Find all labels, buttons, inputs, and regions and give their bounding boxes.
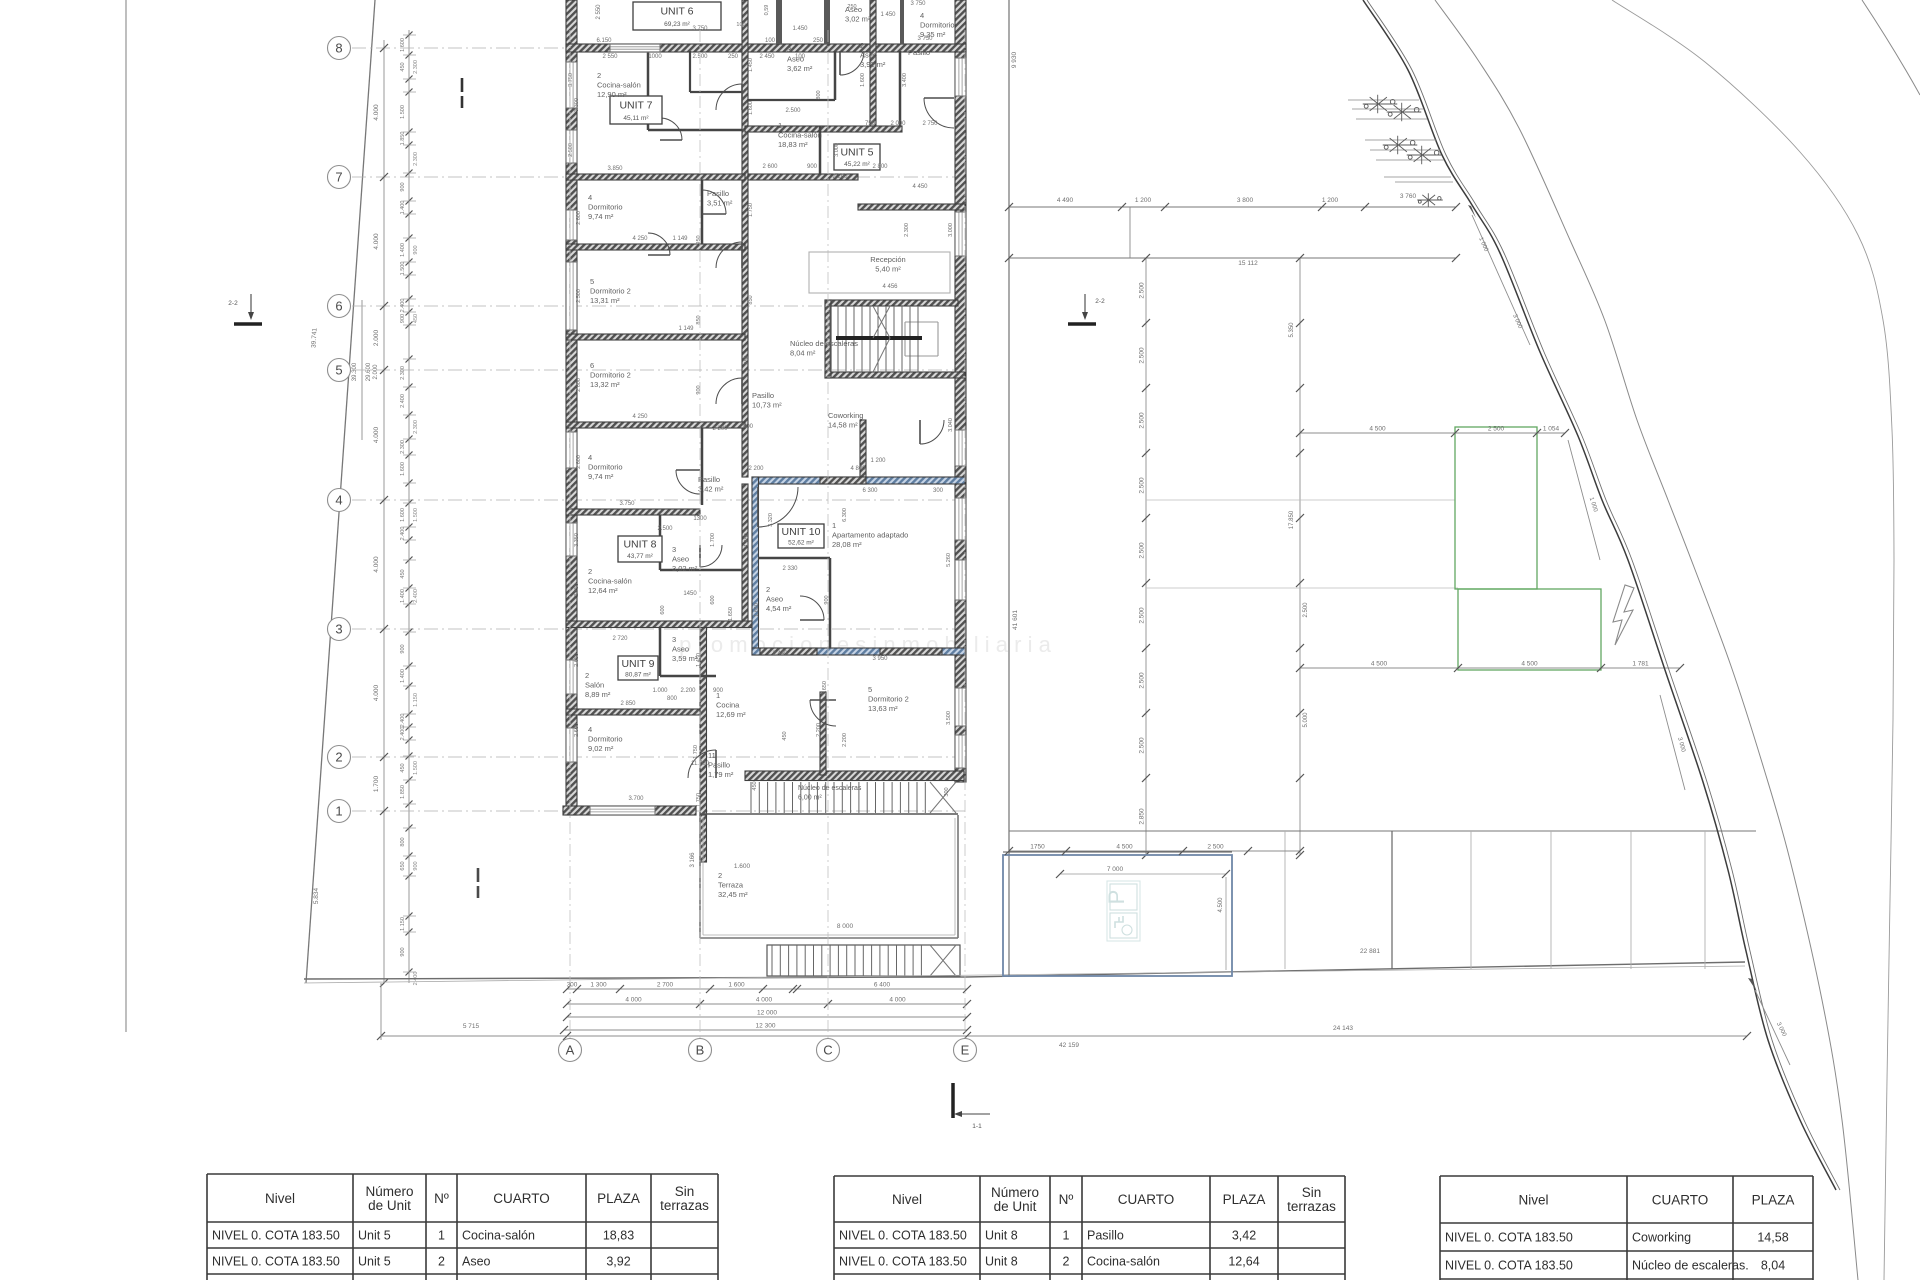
svg-text:600: 600	[660, 605, 666, 614]
svg-text:450: 450	[400, 763, 406, 772]
svg-text:39.741: 39.741	[310, 327, 318, 348]
svg-text:3 950: 3 950	[872, 656, 888, 662]
svg-text:2 720: 2 720	[612, 636, 628, 642]
svg-text:13,31 m²: 13,31 m²	[590, 296, 620, 305]
svg-text:7: 7	[335, 170, 342, 185]
svg-text:2-2: 2-2	[228, 300, 238, 307]
svg-text:45,22 m²: 45,22 m²	[844, 161, 870, 168]
svg-text:Aseo: Aseo	[860, 51, 877, 60]
svg-text:2.400: 2.400	[400, 299, 406, 313]
svg-text:2.500: 2.500	[1139, 607, 1146, 624]
svg-text:4 000: 4 000	[889, 997, 906, 1004]
svg-text:3,92 m²: 3,92 m²	[860, 60, 886, 69]
svg-text:800: 800	[667, 696, 678, 702]
svg-text:8,04: 8,04	[1761, 1259, 1785, 1273]
svg-text:2 440: 2 440	[772, 651, 788, 657]
svg-text:UNIT 10: UNIT 10	[782, 526, 821, 538]
svg-text:9,02 m²: 9,02 m²	[588, 744, 614, 753]
svg-text:UNIT 9: UNIT 9	[621, 658, 654, 670]
svg-text:4 800: 4 800	[850, 466, 866, 472]
svg-text:2.200: 2.200	[816, 723, 822, 737]
svg-text:2: 2	[585, 671, 589, 680]
svg-text:2.400: 2.400	[400, 714, 406, 728]
svg-text:39.300: 39.300	[352, 362, 358, 381]
svg-text:13,32 m²: 13,32 m²	[590, 380, 620, 389]
svg-text:1.750: 1.750	[748, 203, 754, 217]
svg-text:NIVEL 0. COTA 183.50: NIVEL 0. COTA 183.50	[212, 1255, 340, 1269]
svg-text:6: 6	[335, 299, 342, 314]
svg-text:1: 1	[778, 121, 782, 130]
svg-text:Aseo: Aseo	[672, 645, 689, 654]
svg-text:1.000: 1.000	[652, 688, 668, 694]
svg-text:45,11 m²: 45,11 m²	[623, 115, 649, 122]
svg-text:42 159: 42 159	[1059, 1042, 1079, 1049]
svg-text:1 781: 1 781	[1632, 661, 1649, 668]
svg-text:Dormitorio 2: Dormitorio 2	[590, 371, 631, 380]
svg-text:2.600: 2.600	[576, 211, 582, 225]
svg-text:1-1: 1-1	[972, 1123, 982, 1130]
svg-text:2.600: 2.600	[576, 455, 582, 469]
svg-text:900: 900	[413, 245, 419, 254]
svg-text:24 143: 24 143	[1333, 1025, 1353, 1032]
svg-text:2: 2	[1063, 1255, 1070, 1269]
svg-text:32,45 m²: 32,45 m²	[718, 890, 748, 899]
svg-text:2.850: 2.850	[1139, 808, 1146, 825]
svg-text:2.600: 2.600	[574, 723, 580, 737]
svg-text:2 850: 2 850	[620, 701, 636, 707]
svg-text:4 250: 4 250	[632, 414, 648, 420]
svg-text:100: 100	[795, 54, 806, 60]
svg-text:2 600: 2 600	[762, 164, 778, 170]
svg-text:Nivel: Nivel	[265, 1191, 295, 1206]
svg-text:NIVEL 0. COTA 183.50: NIVEL 0. COTA 183.50	[839, 1229, 967, 1243]
svg-text:3,42: 3,42	[1232, 1229, 1256, 1243]
svg-text:PLAZA: PLAZA	[597, 1191, 640, 1206]
svg-text:3: 3	[672, 545, 676, 554]
svg-text:Cocina-salón: Cocina-salón	[588, 577, 632, 586]
svg-text:100: 100	[765, 38, 776, 44]
svg-text:2.500: 2.500	[1139, 672, 1146, 689]
svg-text:14,58 m²: 14,58 m²	[828, 421, 858, 430]
svg-text:900: 900	[400, 182, 406, 191]
svg-text:4.000: 4.000	[373, 426, 380, 443]
svg-text:Pasillo: Pasillo	[908, 48, 930, 57]
svg-text:14,58: 14,58	[1757, 1231, 1788, 1245]
svg-text:1.600: 1.600	[860, 73, 866, 87]
svg-text:600: 600	[710, 595, 716, 604]
svg-text:2.200: 2.200	[680, 688, 696, 694]
svg-text:1.600: 1.600	[734, 863, 751, 870]
svg-text:650: 650	[400, 861, 406, 870]
svg-text:12,64 m²: 12,64 m²	[588, 586, 618, 595]
svg-text:2 200: 2 200	[712, 426, 728, 432]
svg-text:5: 5	[868, 685, 872, 694]
svg-text:12,90 m²: 12,90 m²	[597, 90, 627, 99]
svg-text:3: 3	[787, 45, 791, 54]
svg-text:1.500: 1.500	[400, 262, 406, 276]
svg-text:2 200: 2 200	[748, 466, 764, 472]
svg-text:4 000: 4 000	[756, 997, 773, 1004]
svg-text:3.750: 3.750	[568, 73, 574, 87]
svg-text:4 250: 4 250	[632, 236, 648, 242]
svg-text:4 450: 4 450	[912, 184, 928, 190]
svg-text:5,40 m²: 5,40 m²	[875, 265, 901, 274]
svg-text:Cocina-salón: Cocina-salón	[778, 131, 822, 140]
svg-text:1.700: 1.700	[373, 775, 380, 792]
svg-text:Nº: Nº	[1059, 1192, 1074, 1207]
svg-text:1.500: 1.500	[413, 761, 419, 775]
svg-text:PLAZA: PLAZA	[1223, 1192, 1266, 1207]
svg-text:52,62 m²: 52,62 m²	[788, 539, 814, 546]
svg-text:1000: 1000	[648, 54, 662, 60]
svg-text:2.500: 2.500	[1139, 737, 1146, 754]
svg-text:Terraza: Terraza	[718, 881, 744, 890]
svg-text:22 881: 22 881	[1360, 948, 1380, 955]
svg-text:Nº: Nº	[434, 1191, 449, 1206]
svg-text:Pasillo: Pasillo	[708, 761, 730, 770]
svg-text:2 700: 2 700	[657, 982, 674, 989]
svg-text:Dormitorio 2: Dormitorio 2	[868, 695, 909, 704]
svg-text:450: 450	[400, 569, 406, 578]
svg-text:800: 800	[743, 424, 754, 430]
svg-text:5.260: 5.260	[946, 553, 952, 567]
svg-text:11: 11	[708, 751, 716, 760]
svg-text:NIVEL 0. COTA 183.50: NIVEL 0. COTA 183.50	[1445, 1231, 1573, 1245]
svg-text:1 149: 1 149	[672, 236, 688, 242]
svg-text:300: 300	[933, 488, 944, 494]
svg-text:12,69 m²: 12,69 m²	[716, 710, 746, 719]
svg-text:4: 4	[335, 493, 342, 508]
svg-text:1.600: 1.600	[400, 508, 406, 522]
svg-text:Dormitorio: Dormitorio	[920, 21, 955, 30]
svg-text:900: 900	[713, 688, 724, 694]
svg-text:1.400: 1.400	[400, 243, 406, 257]
svg-text:300: 300	[567, 982, 578, 989]
svg-text:950: 950	[696, 235, 702, 244]
svg-text:1 200: 1 200	[1135, 197, 1152, 204]
svg-text:4,54 m²: 4,54 m²	[766, 604, 792, 613]
svg-text:2.500: 2.500	[1139, 542, 1146, 559]
svg-text:3,02 m²: 3,02 m²	[672, 564, 698, 573]
svg-text:1: 1	[438, 1229, 445, 1243]
svg-text:Dormitorio: Dormitorio	[588, 463, 623, 472]
svg-text:Coworking: Coworking	[1632, 1231, 1691, 1245]
svg-text:3 760: 3 760	[1400, 193, 1417, 200]
svg-text:Unit 8: Unit 8	[985, 1255, 1018, 1269]
svg-text:450: 450	[782, 731, 788, 740]
svg-text:5: 5	[335, 363, 342, 378]
svg-text:2.300: 2.300	[413, 60, 419, 74]
svg-text:4 500: 4 500	[1371, 661, 1388, 668]
svg-text:4: 4	[588, 453, 592, 462]
svg-text:1.400: 1.400	[400, 669, 406, 683]
svg-text:4.000: 4.000	[373, 104, 380, 121]
svg-text:2.500: 2.500	[568, 143, 574, 157]
svg-text:3 750: 3 750	[917, 36, 933, 42]
svg-text:450: 450	[400, 62, 406, 71]
svg-text:900: 900	[400, 644, 406, 653]
svg-text:UNIT 8: UNIT 8	[623, 539, 656, 551]
svg-text:C: C	[823, 1043, 832, 1058]
svg-text:Núcleo de escaleras: Núcleo de escaleras	[790, 339, 858, 348]
svg-text:Núcleo de escaleras: Núcleo de escaleras	[798, 785, 862, 792]
svg-text:PLAZA: PLAZA	[1752, 1193, 1795, 1208]
svg-text:1 200: 1 200	[1322, 197, 1339, 204]
svg-text:1,79 m²: 1,79 m²	[708, 770, 734, 779]
svg-text:2.200: 2.200	[842, 733, 848, 747]
svg-text:NIVEL 0. COTA 183.50: NIVEL 0. COTA 183.50	[839, 1255, 967, 1269]
svg-text:2.500: 2.500	[657, 526, 673, 532]
svg-text:43,77 m²: 43,77 m²	[627, 553, 653, 560]
svg-text:2.600: 2.600	[576, 378, 582, 392]
svg-text:Cocina-salón: Cocina-salón	[597, 81, 641, 90]
svg-text:2.500: 2.500	[1139, 347, 1146, 364]
svg-text:1.450: 1.450	[744, 533, 750, 547]
svg-text:2.300: 2.300	[413, 152, 419, 166]
svg-text:4: 4	[588, 725, 592, 734]
svg-text:Apartamento adaptado: Apartamento adaptado	[832, 531, 908, 540]
svg-text:5 715: 5 715	[463, 1023, 480, 1030]
svg-text:Recepción: Recepción	[870, 255, 905, 264]
svg-text:2.400: 2.400	[400, 394, 406, 408]
svg-text:terrazas: terrazas	[660, 1198, 709, 1213]
svg-text:Aseo: Aseo	[845, 5, 862, 14]
svg-text:1.450: 1.450	[696, 653, 702, 667]
svg-text:2: 2	[438, 1255, 445, 1269]
svg-text:18,83 m²: 18,83 m²	[778, 140, 808, 149]
svg-text:2.650: 2.650	[574, 653, 580, 667]
svg-text:terrazas: terrazas	[1287, 1199, 1336, 1214]
svg-text:NIVEL 0. COTA 183.50: NIVEL 0. COTA 183.50	[1445, 1259, 1573, 1273]
svg-text:3.350: 3.350	[574, 533, 580, 547]
svg-text:Dormitorio 2: Dormitorio 2	[590, 287, 631, 296]
svg-text:1 149: 1 149	[678, 326, 694, 332]
svg-text:2.300: 2.300	[400, 440, 406, 454]
svg-text:2 550: 2 550	[602, 54, 618, 60]
svg-text:900: 900	[824, 595, 830, 604]
svg-text:1.850: 1.850	[400, 785, 406, 799]
svg-text:1.600: 1.600	[748, 101, 754, 115]
svg-text:2: 2	[718, 871, 722, 880]
svg-text:Pasillo: Pasillo	[698, 475, 720, 484]
svg-text:1.850: 1.850	[400, 132, 406, 146]
svg-text:Dormitorio: Dormitorio	[588, 203, 623, 212]
svg-text:Cocina-salón: Cocina-salón	[462, 1229, 535, 1243]
svg-text:Sin: Sin	[1302, 1185, 1322, 1200]
svg-text:1.400: 1.400	[400, 589, 406, 603]
svg-text:2 500: 2 500	[1488, 426, 1505, 433]
svg-text:2-2: 2-2	[1095, 298, 1105, 305]
svg-text:1.750: 1.750	[693, 745, 699, 759]
svg-text:A: A	[566, 1043, 575, 1058]
svg-text:2.000: 2.000	[373, 364, 379, 380]
svg-text:900: 900	[807, 164, 818, 170]
svg-text:2 200: 2 200	[832, 174, 848, 180]
svg-text:29.600: 29.600	[366, 362, 372, 381]
svg-text:2: 2	[335, 750, 342, 765]
svg-text:5: 5	[590, 277, 594, 286]
svg-text:P: P	[1104, 890, 1129, 905]
svg-text:2: 2	[588, 567, 592, 576]
svg-text:3.400: 3.400	[902, 73, 908, 87]
svg-text:2.500: 2.500	[576, 289, 582, 303]
svg-text:100: 100	[736, 22, 745, 28]
svg-text:Aseo: Aseo	[766, 595, 783, 604]
svg-text:6: 6	[590, 361, 594, 370]
svg-text:Pasillo: Pasillo	[707, 189, 729, 198]
svg-text:2.500: 2.500	[785, 108, 801, 114]
svg-text:2: 2	[860, 41, 864, 50]
svg-text:Nivel: Nivel	[1518, 1193, 1548, 1208]
svg-text:1 054: 1 054	[1543, 426, 1560, 433]
svg-text:2.300: 2.300	[413, 420, 419, 434]
svg-text:6.300: 6.300	[842, 508, 848, 522]
svg-text:3: 3	[335, 622, 342, 637]
svg-text:Cocina: Cocina	[716, 701, 740, 710]
svg-text:Sin: Sin	[675, 1184, 695, 1199]
svg-text:250: 250	[728, 54, 739, 60]
svg-text:1.450: 1.450	[748, 58, 754, 72]
svg-text:1.150: 1.150	[413, 693, 419, 707]
svg-text:E: E	[961, 1043, 970, 1058]
svg-text:450: 450	[413, 314, 419, 323]
svg-text:3.300: 3.300	[574, 98, 580, 112]
svg-text:1: 1	[832, 521, 836, 530]
svg-text:Aseo: Aseo	[462, 1255, 491, 1269]
svg-text:1.650: 1.650	[754, 603, 760, 617]
svg-text:Cocina-salón: Cocina-salón	[1087, 1255, 1160, 1269]
svg-text:2 000: 2 000	[890, 121, 906, 127]
svg-text:3.750: 3.750	[619, 501, 635, 507]
svg-text:0,59: 0,59	[764, 5, 770, 16]
svg-text:800: 800	[816, 90, 822, 99]
svg-text:1.700: 1.700	[710, 533, 716, 547]
svg-text:de Unit: de Unit	[994, 1199, 1037, 1214]
svg-text:Unit 8: Unit 8	[985, 1229, 1018, 1243]
svg-text:3 750: 3 750	[910, 1, 926, 7]
svg-text:450: 450	[752, 781, 758, 790]
svg-text:12,64: 12,64	[1228, 1255, 1259, 1269]
svg-text:2.500: 2.500	[1139, 412, 1146, 429]
svg-text:4 490: 4 490	[1057, 197, 1074, 204]
svg-text:6 400: 6 400	[874, 982, 891, 989]
svg-text:4 500: 4 500	[1369, 426, 1386, 433]
svg-text:UNIT 5: UNIT 5	[840, 147, 873, 159]
svg-text:8: 8	[335, 41, 342, 56]
svg-text:2: 2	[597, 71, 601, 80]
svg-text:950: 950	[744, 355, 750, 364]
svg-text:900: 900	[696, 385, 702, 394]
svg-text:3,59 m²: 3,59 m²	[672, 654, 698, 663]
svg-text:7 000: 7 000	[1107, 866, 1124, 873]
svg-text:750: 750	[865, 121, 876, 127]
svg-text:9 930: 9 930	[1011, 51, 1018, 68]
svg-text:3.320: 3.320	[768, 513, 774, 527]
svg-text:10,73 m²: 10,73 m²	[752, 401, 782, 410]
svg-text:3: 3	[672, 635, 676, 644]
svg-text:1.600: 1.600	[400, 38, 406, 52]
svg-text:2.000: 2.000	[373, 329, 380, 346]
svg-text:1.150: 1.150	[400, 917, 406, 931]
svg-text:3,92: 3,92	[606, 1255, 630, 1269]
svg-text:1.500: 1.500	[413, 508, 419, 522]
svg-text:Número: Número	[365, 1184, 413, 1199]
svg-text:3.040: 3.040	[948, 418, 954, 432]
svg-text:3.500: 3.500	[946, 711, 952, 725]
svg-text:1.500: 1.500	[400, 105, 406, 119]
svg-text:850: 850	[748, 295, 754, 304]
svg-text:2 550: 2 550	[596, 4, 602, 20]
svg-text:3.700: 3.700	[628, 796, 644, 802]
svg-text:5.350: 5.350	[1289, 322, 1295, 338]
svg-text:6 300: 6 300	[862, 488, 878, 494]
svg-text:9,74 m²: 9,74 m²	[588, 472, 614, 481]
svg-text:1450: 1450	[683, 591, 697, 597]
svg-text:1 600: 1 600	[728, 982, 745, 989]
svg-text:4.500: 4.500	[1218, 897, 1224, 913]
svg-text:1.650: 1.650	[728, 607, 734, 621]
svg-text:850: 850	[696, 315, 702, 324]
svg-text:Nivel: Nivel	[892, 1192, 922, 1207]
svg-text:UNIT 6: UNIT 6	[660, 6, 693, 18]
svg-text:4: 4	[920, 11, 924, 20]
svg-text:1 200: 1 200	[870, 458, 886, 464]
svg-text:8,04 m²: 8,04 m²	[790, 349, 816, 358]
svg-text:3,51 m²: 3,51 m²	[707, 199, 733, 208]
svg-text:3,62 m²: 3,62 m²	[787, 64, 813, 73]
svg-text:28,08 m²: 28,08 m²	[832, 540, 862, 549]
svg-text:15 112: 15 112	[1238, 260, 1258, 267]
svg-text:12 300: 12 300	[756, 1023, 776, 1030]
svg-text:6.150: 6.150	[596, 38, 612, 44]
svg-text:2 330: 2 330	[782, 566, 798, 572]
svg-text:250: 250	[813, 38, 824, 44]
svg-text:2 500: 2 500	[1207, 844, 1224, 851]
svg-text:2 800: 2 800	[872, 164, 888, 170]
svg-text:4: 4	[588, 193, 592, 202]
svg-text:2.300: 2.300	[904, 223, 910, 237]
svg-text:UNIT 7: UNIT 7	[619, 100, 652, 112]
svg-text:Pasillo: Pasillo	[752, 391, 774, 400]
svg-text:4 000: 4 000	[625, 997, 642, 1004]
svg-text:Coworking: Coworking	[828, 411, 863, 420]
svg-text:900: 900	[400, 314, 406, 323]
svg-text:9,74 m²: 9,74 m²	[588, 212, 614, 221]
svg-text:3.000: 3.000	[948, 223, 954, 237]
svg-text:1 450: 1 450	[880, 12, 896, 18]
svg-text:1750: 1750	[1030, 844, 1045, 851]
svg-text:Pasillo: Pasillo	[1087, 1229, 1124, 1243]
svg-text:4 500: 4 500	[1116, 844, 1133, 851]
svg-text:Unit 5: Unit 5	[358, 1229, 391, 1243]
svg-text:CUARTO: CUARTO	[1652, 1193, 1709, 1208]
svg-text:4.000: 4.000	[373, 684, 380, 701]
svg-text:1 300: 1 300	[590, 982, 607, 989]
svg-text:1.450: 1.450	[792, 26, 808, 32]
svg-text:2.300: 2.300	[400, 366, 406, 380]
svg-text:300: 300	[944, 787, 950, 796]
svg-text:80,87 m²: 80,87 m²	[625, 671, 651, 678]
svg-text:900: 900	[413, 861, 419, 870]
svg-text:2.500: 2.500	[1303, 602, 1309, 618]
svg-text:4.000: 4.000	[373, 233, 380, 250]
svg-text:3.850: 3.850	[607, 166, 623, 172]
svg-text:1.750: 1.750	[696, 793, 702, 807]
svg-text:2.650: 2.650	[822, 681, 828, 695]
svg-text:6,00 m²: 6,00 m²	[798, 795, 822, 802]
svg-text:CUARTO: CUARTO	[493, 1191, 550, 1206]
svg-text:8,89 m²: 8,89 m²	[585, 690, 611, 699]
